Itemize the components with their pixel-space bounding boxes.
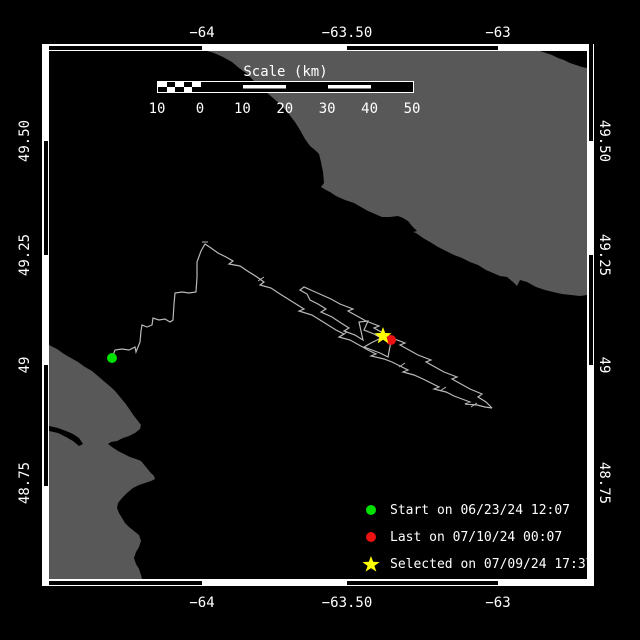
legend: Start on 06/23/24 12:07Last on 07/10/24 … xyxy=(362,501,594,582)
axis-label-bottom: −63 xyxy=(485,595,510,611)
scale-tick-label: 50 xyxy=(404,101,421,117)
track-tick-mark xyxy=(440,387,446,391)
frame-left xyxy=(42,44,49,586)
legend-label: Start on 06/23/24 12:07 xyxy=(390,503,570,518)
frame-top xyxy=(42,44,594,51)
scale-tick-label: 40 xyxy=(361,101,378,117)
dot-glyph xyxy=(366,505,376,515)
scale-tick-label: 10 xyxy=(149,101,166,117)
start-marker[interactable] xyxy=(107,353,117,363)
scale-tick-label: 0 xyxy=(196,101,204,117)
scale-checker-cell xyxy=(158,82,167,92)
drift-track-line[interactable] xyxy=(300,287,492,408)
axis-label-right: 49.25 xyxy=(596,234,612,276)
axis-label-top: −63.50 xyxy=(322,25,373,41)
star-icon xyxy=(362,555,380,573)
axis-label-left: 49 xyxy=(17,357,33,374)
scale-bar-segment xyxy=(286,82,328,92)
axis-label-right: 49 xyxy=(596,357,612,374)
landmass xyxy=(49,345,155,579)
scale-checker-cell xyxy=(167,82,176,92)
legend-label: Last on 07/10/24 00:07 xyxy=(390,530,562,545)
axis-label-left: 49.25 xyxy=(17,234,33,276)
scale-bar-title: Scale (km) xyxy=(157,64,414,80)
scale-bar-segment xyxy=(243,82,285,92)
axis-label-bottom: −63.50 xyxy=(322,595,373,611)
drift-track-map-page: −64−63.50−63 −64−63.50−63 49.5049.254948… xyxy=(0,0,640,640)
drift-track-line[interactable] xyxy=(112,244,492,408)
scale-checker-cell xyxy=(175,82,184,92)
axis-label-left: 48.75 xyxy=(17,462,33,504)
scale-bar-segment xyxy=(328,82,370,92)
last-marker[interactable] xyxy=(386,335,396,345)
scale-checker-cell xyxy=(184,82,193,92)
legend-label: Selected on 07/09/24 17:37 xyxy=(390,557,594,572)
scale-checker-cell xyxy=(192,82,201,92)
axis-label-top: −63 xyxy=(485,25,510,41)
legend-item: Selected on 07/09/24 17:37 xyxy=(362,555,594,573)
dot-glyph xyxy=(366,532,376,542)
axis-label-top: −64 xyxy=(189,25,214,41)
star-glyph xyxy=(362,556,380,573)
legend-item: Start on 06/23/24 12:07 xyxy=(362,501,594,519)
legend-item: Last on 07/10/24 00:07 xyxy=(362,528,594,546)
dot-icon xyxy=(362,528,380,546)
scale-bar-segment xyxy=(371,82,413,92)
scale-bar-tick-labels: 1001020304050 xyxy=(157,101,414,117)
scale-tick-label: 30 xyxy=(319,101,336,117)
dot-icon xyxy=(362,501,380,519)
scale-bar-segment xyxy=(201,82,243,92)
scale-bar-checker-section xyxy=(158,82,201,92)
axis-label-right: 49.50 xyxy=(596,120,612,162)
axis-label-bottom: −64 xyxy=(189,595,214,611)
scale-tick-label: 20 xyxy=(276,101,293,117)
axis-label-right: 48.75 xyxy=(596,462,612,504)
scale-bar: Scale (km) 1001020304050 xyxy=(157,64,414,117)
axis-label-left: 49.50 xyxy=(17,120,33,162)
scale-bar-graphic xyxy=(157,81,414,93)
scale-tick-label: 10 xyxy=(234,101,251,117)
